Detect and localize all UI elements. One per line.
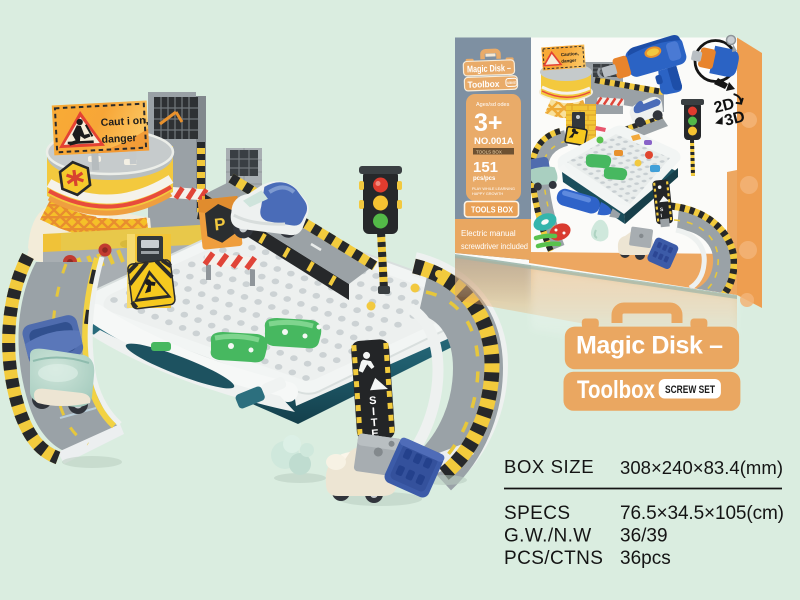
svg-text:Toolbox: Toolbox: [577, 376, 655, 404]
svg-text:Magic Disk –: Magic Disk –: [467, 63, 511, 76]
svg-text:36pcs: 36pcs: [620, 548, 671, 569]
svg-text:BOX SIZE: BOX SIZE: [504, 456, 594, 477]
svg-text:Magic Disk –: Magic Disk –: [576, 332, 723, 360]
svg-text:screwdriver included: screwdriver included: [461, 242, 528, 251]
svg-text:pcs/pcs: pcs/pcs: [473, 176, 496, 182]
svg-text:PLAY WHILE LEARNING: PLAY WHILE LEARNING: [472, 187, 515, 191]
svg-text:36/39: 36/39: [620, 526, 668, 547]
svg-text:danger: danger: [101, 132, 137, 146]
svg-text:G.W./N.W: G.W./N.W: [504, 526, 592, 547]
svg-text:151: 151: [473, 159, 498, 176]
svg-text:Electric manual: Electric manual: [461, 229, 516, 238]
svg-text:NO.001A: NO.001A: [474, 136, 514, 147]
svg-text:TOOLS BOX: TOOLS BOX: [471, 205, 513, 215]
svg-text:PCS/CTNS: PCS/CTNS: [504, 548, 603, 569]
svg-text:P: P: [213, 214, 226, 234]
svg-text:308×240×83.4(mm): 308×240×83.4(mm): [620, 457, 783, 478]
svg-text:3+: 3+: [474, 109, 503, 137]
svg-text:SCREW SET: SCREW SET: [507, 81, 516, 85]
svg-text:SPECS: SPECS: [504, 503, 570, 524]
svg-text:Toolbox: Toolbox: [467, 79, 499, 90]
svg-text:danger: danger: [561, 58, 577, 64]
svg-text:Ages/sd odes: Ages/sd odes: [476, 102, 510, 108]
svg-text:Caut i on,: Caut i on,: [100, 114, 148, 128]
svg-text:76.5×34.5×105(cm): 76.5×34.5×105(cm): [620, 503, 784, 524]
svg-text:SCREW SET: SCREW SET: [665, 384, 715, 396]
svg-text:TOOLS BOX: TOOLS BOX: [476, 150, 502, 155]
svg-text:HAPPY GROWTH: HAPPY GROWTH: [472, 192, 503, 196]
